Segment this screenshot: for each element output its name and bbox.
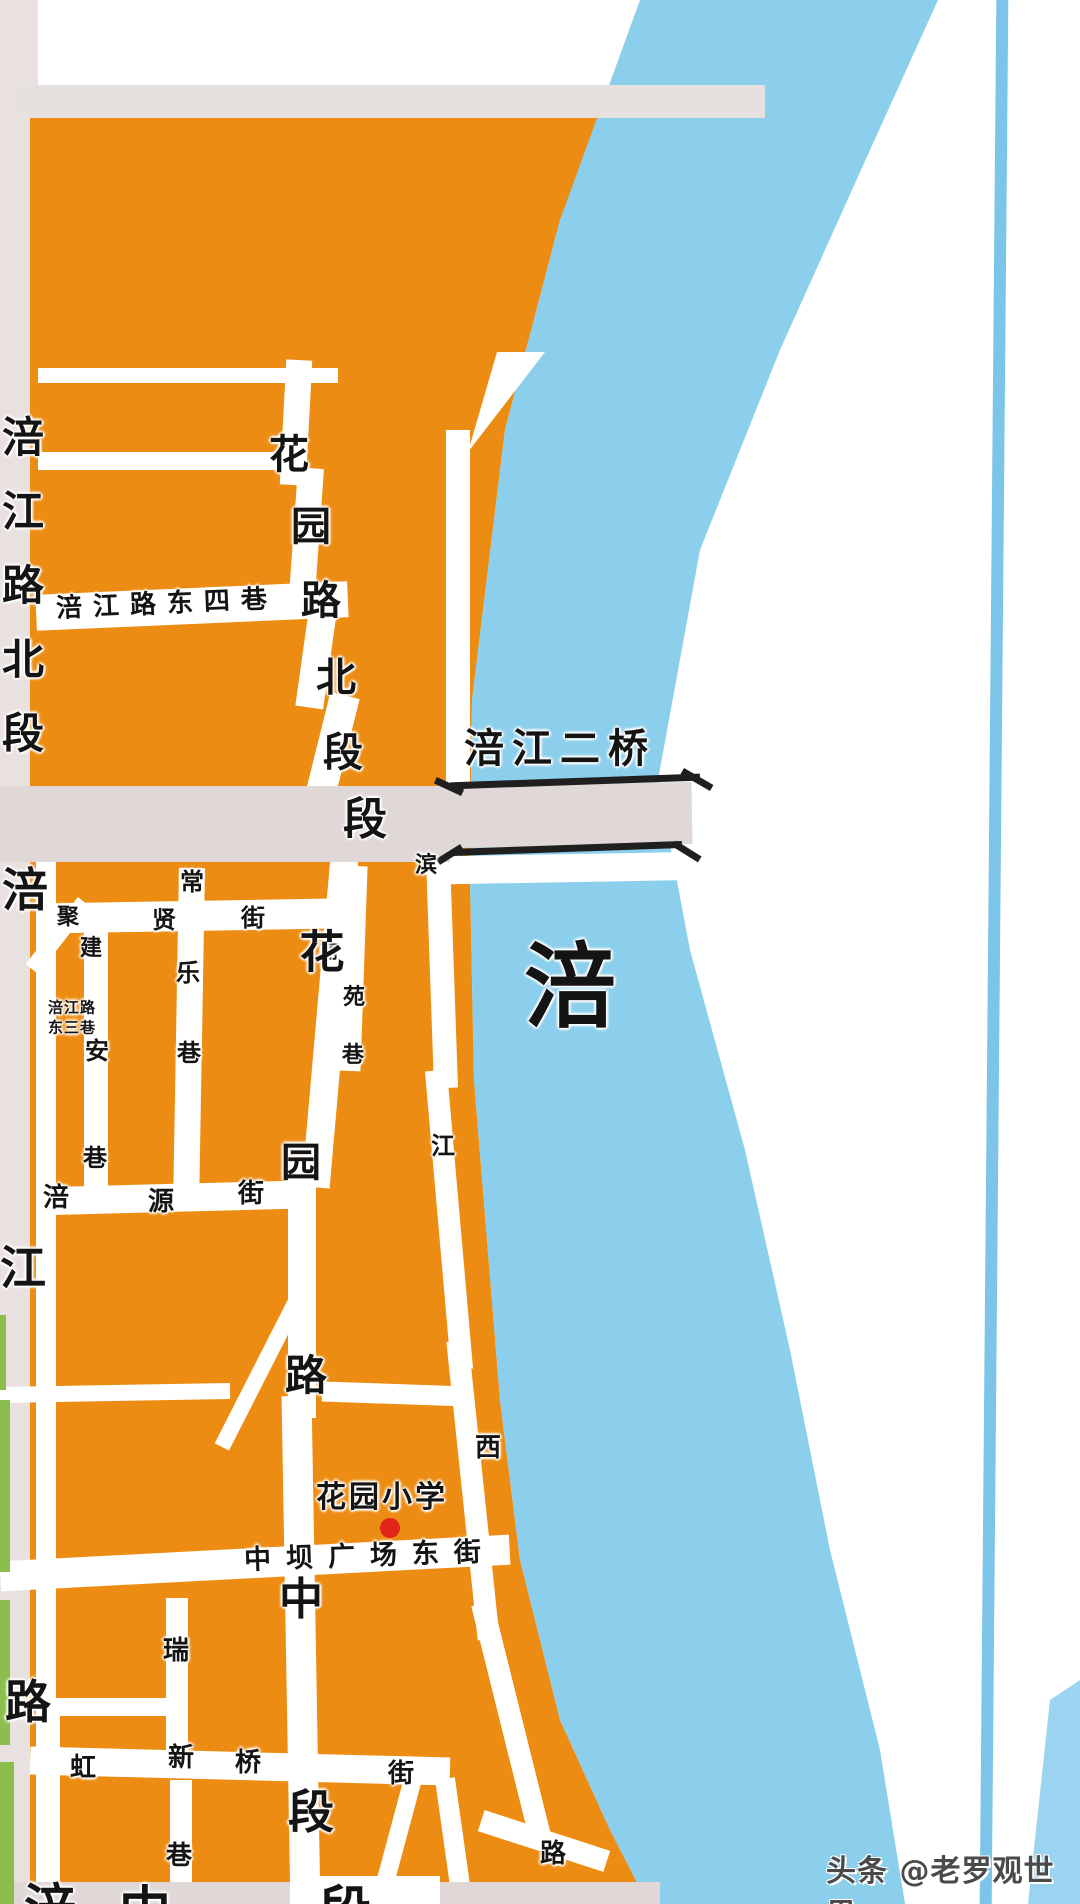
road-huayuan-mid-char: 花 xyxy=(299,930,344,975)
road-liyuanxiang-char: 巷 xyxy=(342,1045,364,1067)
road-jujian-char: 聚 xyxy=(57,907,79,929)
road-huayuan-mid-char: 段 xyxy=(288,1789,334,1835)
road-fujiang-char-lu: 路 xyxy=(5,1679,51,1725)
road-fujiang-road-north-label: 涪 江 路 北 段 xyxy=(2,401,44,771)
road-xiang-char: 巷 xyxy=(83,1146,107,1170)
road-fujianglu-dongsanxiang-line1: 涪江路 xyxy=(48,1001,96,1016)
road-duan-char: 段 xyxy=(343,798,387,842)
road-fujianglu-dongsanxiang-line2: 东三巷 xyxy=(48,1021,96,1036)
road-jie-char: 街 xyxy=(241,906,265,930)
road-le-char: 乐 xyxy=(176,961,200,985)
road-huayuan-north-char: 北 xyxy=(316,658,356,698)
road-zhongba-guangchang-dongjie-label: 中坝广场东街 xyxy=(244,1538,497,1574)
bridge-fujiang-erqiao-label: 涪江二桥 xyxy=(464,729,656,769)
road-fujiang-char-jiang: 江 xyxy=(0,1245,46,1291)
road-xiang-char: 巷 xyxy=(166,1843,192,1869)
road-huayuan-mid-char: 路 xyxy=(285,1355,327,1397)
watermark: 头条 @老罗观世界 xyxy=(826,1846,1080,1904)
road-fujianglu-dongsixiang-label: 涪江路东四巷 xyxy=(56,586,279,622)
city-street-map: 涪 江 路 北 段涪江路花园路北段段涪江二桥涪涪江路东四巷涪江路东三巷聚建常贤街… xyxy=(0,0,1080,1904)
road-huayuan-mid-char: 中 xyxy=(279,1578,323,1622)
road-partial-bottom-char: 段 xyxy=(319,1886,371,1904)
road-fuyuanjie-char: 涪 xyxy=(43,1185,69,1211)
road-xian-char: 贤 xyxy=(152,908,176,932)
road-huayuan-north-char: 段 xyxy=(323,733,363,773)
road-liyuanxiang-char: 苑 xyxy=(343,987,365,1009)
road-an-char: 安 xyxy=(85,1039,109,1063)
river-fu-label: 涪 xyxy=(524,942,616,1034)
road-binjiang-char: 滨 xyxy=(415,855,437,877)
road-huayuan-north-char: 园 xyxy=(291,507,331,547)
labels-layer: 涪 江 路 北 段涪江路花园路北段段涪江二桥涪涪江路东四巷涪江路东三巷聚建常贤街… xyxy=(0,0,1080,1904)
road-lu-char: 路 xyxy=(540,1841,566,1867)
road-jie-char: 街 xyxy=(388,1761,414,1787)
road-partial-bottom-char: 中 xyxy=(119,1886,171,1904)
road-huayuan-north-char: 路 xyxy=(301,581,341,621)
road-huayuan-mid-char: 园 xyxy=(281,1143,321,1183)
poi-huayuan-school-label: 花园小学 xyxy=(316,1483,448,1513)
road-binjiang-char: 西 xyxy=(475,1435,501,1461)
road-hong-char: 虹 xyxy=(70,1755,96,1781)
road-chang-char: 常 xyxy=(180,870,204,894)
road-fujiang-char-fu: 涪 xyxy=(2,867,48,913)
road-binjiang-char: 江 xyxy=(431,1134,455,1158)
road-rui-char: 瑞 xyxy=(163,1638,189,1664)
road-huayuan-north-char: 花 xyxy=(269,435,309,475)
road-xin-char: 新 xyxy=(168,1745,194,1771)
road-fuyuanjie-char: 街 xyxy=(238,1181,264,1207)
road-fuyuanjie-char: 源 xyxy=(148,1189,174,1215)
road-partial-bottom-char: 涪 xyxy=(24,1884,76,1904)
road-xiang-char: 巷 xyxy=(177,1041,201,1065)
road-jujian-char: 建 xyxy=(80,938,102,960)
road-qiao-char: 桥 xyxy=(235,1750,261,1776)
